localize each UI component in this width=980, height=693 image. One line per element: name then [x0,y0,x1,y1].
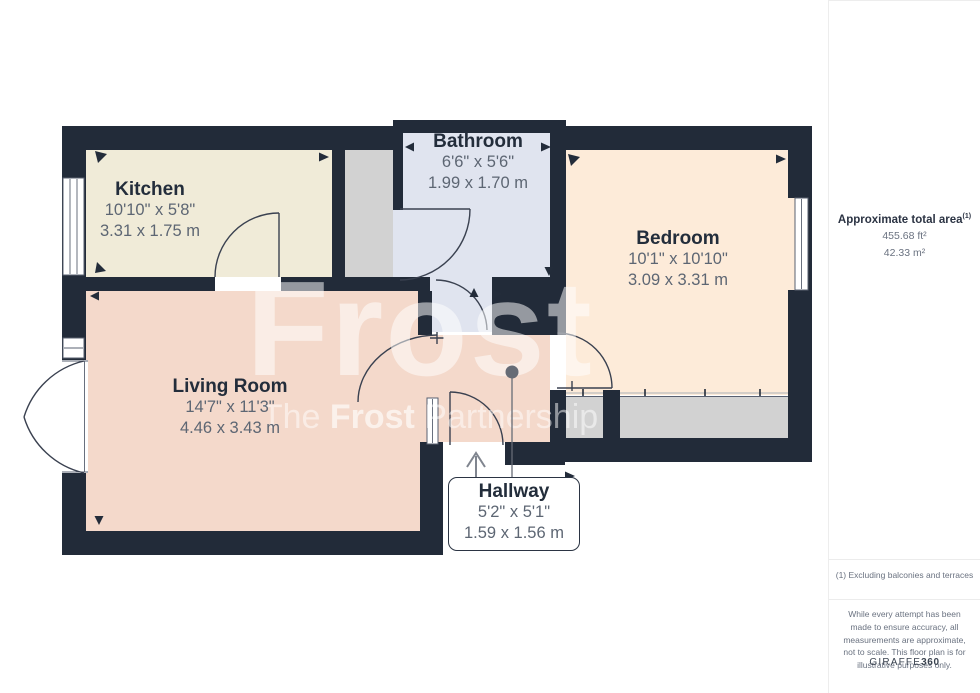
living-room-size-metric: 4.46 x 3.43 m [172,418,287,439]
brand-logo: GIRAFFE360 [829,657,980,668]
kitchen-size-metric: 3.31 x 1.75 m [100,221,200,242]
watermark-text: Frost [246,253,594,404]
hallway-size-imperial: 5'2" x 5'1" [449,502,579,523]
total-area-title-text: Approximate total area [838,214,963,226]
bedroom-size-metric: 3.09 x 3.31 m [628,270,728,291]
living-room-name: Living Room [172,376,287,397]
room-label-bedroom: Bedroom 10'1" x 10'10" 3.09 x 3.31 m [628,228,728,291]
floorplan-page: Frost The Frost Partnership Kitchen 10'1… [0,0,980,693]
hallway-callout: Hallway 5'2" x 5'1" 1.59 x 1.56 m [448,477,580,551]
sidebar-divider [829,559,980,560]
total-area-panel: Approximate total area(1) 455.68 ft² 42.… [829,209,980,262]
room-label-bathroom: Bathroom 6'6" x 5'6" 1.99 x 1.70 m [428,131,528,194]
kitchen-name: Kitchen [100,179,200,200]
total-area-title: Approximate total area(1) [829,209,980,228]
kitchen-size-imperial: 10'10" x 5'8" [100,200,200,221]
wardrobe-floor [620,396,790,438]
watermark-sub-bold: Frost [330,398,415,436]
total-area-ft: 455.68 ft² [829,228,980,245]
watermark-sub-post: Partnership [415,398,598,436]
kitchen-window [63,178,84,275]
brand-logo-bold: 360 [921,657,940,668]
hallway-size-metric: 1.59 x 1.56 m [449,523,579,544]
hallway-name: Hallway [449,481,579,502]
bedroom-name: Bedroom [628,228,728,249]
info-sidebar: Approximate total area(1) 455.68 ft² 42.… [828,0,980,693]
total-area-m: 42.33 m² [829,245,980,262]
watermark-subtext: The Frost Partnership [262,398,598,436]
room-label-living-room: Living Room 14'7" x 11'3" 4.46 x 3.43 m [172,376,287,439]
bathroom-size-metric: 1.99 x 1.70 m [428,173,528,194]
total-area-footnote-marker: (1) [963,213,972,220]
brand-logo-regular: GIRAFFE [869,657,921,668]
room-label-kitchen: Kitchen 10'10" x 5'8" 3.31 x 1.75 m [100,179,200,242]
bedroom-size-imperial: 10'1" x 10'10" [628,249,728,270]
bathroom-name: Bathroom [428,131,528,152]
living-room-size-imperial: 14'7" x 11'3" [172,397,287,418]
bathroom-size-imperial: 6'6" x 5'6" [428,152,528,173]
sidebar-divider [829,599,980,600]
footnote-text: (1) Excluding balconies and terraces [829,570,980,580]
